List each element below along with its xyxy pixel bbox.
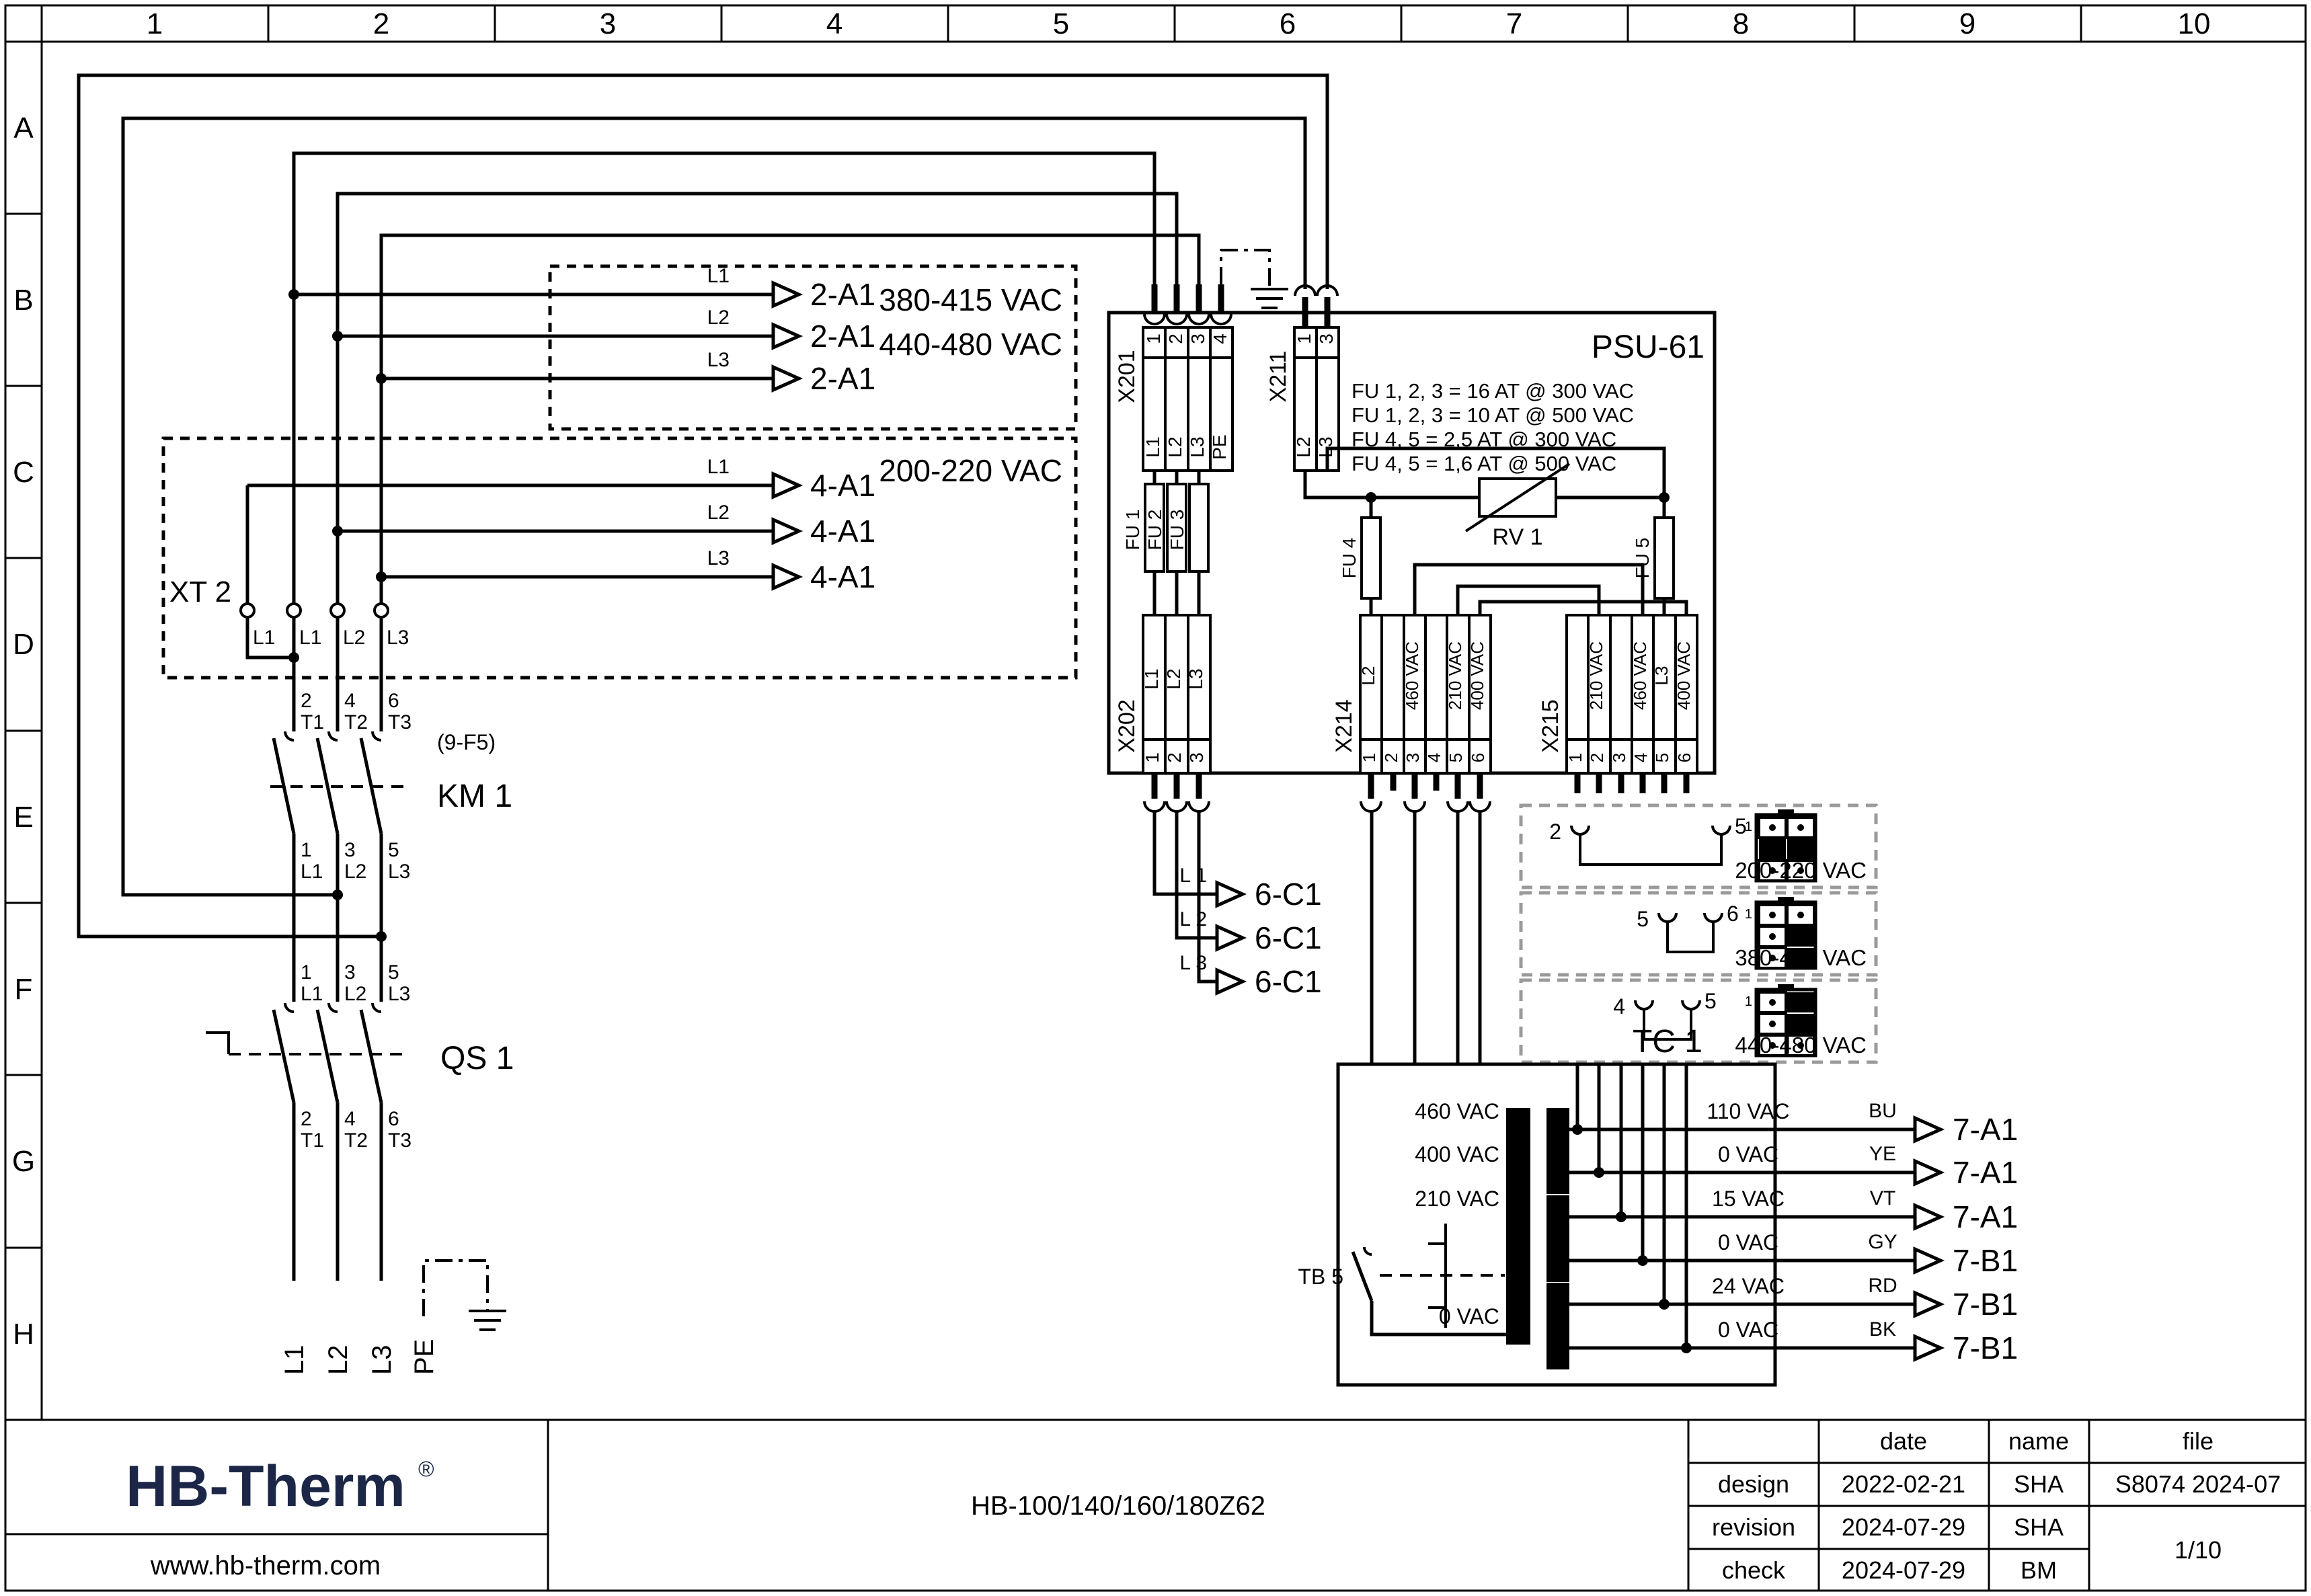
phase-label: L 3 — [1179, 952, 1207, 974]
row-date: 2024-07-29 — [1842, 1513, 1965, 1541]
x201-name: X201 — [1114, 350, 1140, 403]
logo: HB-Therm ® www.hb-therm.com — [126, 1454, 434, 1581]
pin-label: L3 — [1651, 666, 1672, 686]
fuse-label: FU 2 — [1144, 510, 1165, 551]
secondary-tap: 0 VAC — [1718, 1230, 1778, 1254]
pe-ground-symbol — [1251, 289, 1288, 308]
ruler-col: 1 — [147, 7, 163, 40]
logo-url: www.hb-therm.com — [150, 1551, 381, 1581]
jumper-pin: 6 — [1727, 902, 1739, 926]
pin: 3 — [1316, 333, 1337, 344]
hv-feed-box: L1 L2 L3 2-A1 2-A1 2-A1 380-415 VAC 440-… — [550, 265, 1076, 429]
primary-tap: 210 VAC — [1415, 1187, 1499, 1211]
xt2-terminal-label: L3 — [387, 627, 409, 649]
jumper-pin: 4 — [1613, 994, 1625, 1019]
qs1-pin-label: T3 — [388, 1129, 412, 1152]
qs1-pin-label: L3 — [388, 983, 410, 1005]
plug-pin: 1 — [1745, 820, 1752, 834]
ruler-col: 9 — [1959, 7, 1975, 40]
selector-380-415: 5 6 1 380-415 VAC — [1521, 893, 1876, 975]
selector-range: 200-220 VAC — [1735, 858, 1867, 883]
row-label: check — [1722, 1556, 1786, 1584]
pin-label: L3 — [1187, 436, 1208, 457]
row-label: revision — [1712, 1513, 1795, 1541]
pin: 3 — [1609, 753, 1629, 762]
km1-pin-label: L2 — [344, 861, 366, 883]
ruler-row: C — [13, 456, 34, 489]
voltage-range: 380-415 VAC — [879, 282, 1062, 317]
dest-label: 2-A1 — [810, 361, 875, 396]
km1-pin-label: T3 — [388, 711, 412, 733]
secondary-tap: 15 VAC — [1712, 1187, 1785, 1211]
qs1-pin: 1 — [301, 961, 312, 984]
pin: 2 — [1381, 753, 1401, 762]
arrow-2a1 — [773, 283, 799, 306]
wire-color: YE — [1869, 1143, 1896, 1165]
pin-label: L2 — [1358, 666, 1378, 686]
ruler-col: 7 — [1506, 7, 1522, 40]
pin: 5 — [1446, 753, 1466, 762]
jumper-pin: 2 — [1549, 820, 1561, 844]
km1-pin-label: T2 — [344, 711, 368, 733]
x214-name: X214 — [1331, 699, 1357, 752]
dest-label: 7-B1 — [1953, 1287, 2018, 1322]
title-block: HB-Therm ® www.hb-therm.com HB-100/140/1… — [5, 1420, 2306, 1591]
pin: 4 — [1424, 753, 1444, 762]
pin: 1 — [1359, 753, 1379, 762]
phase-label: L 2 — [1179, 908, 1207, 930]
pin: 4 — [1210, 333, 1230, 344]
pin-label: L2 — [1165, 436, 1185, 457]
pin-label: 210 VAC — [1586, 641, 1606, 710]
schematic-canvas: 1 2 3 4 5 6 7 8 9 10 A B C D E F G H — [0, 0, 2311, 1596]
pin-label: 460 VAC — [1402, 641, 1422, 710]
secondary-tap: 110 VAC — [1707, 1099, 1789, 1123]
ruler-row: B — [13, 284, 33, 317]
tc1-outputs: BU YE VT GY RD BK 7-A1 7-A1 7-A1 7-B1 7-… — [1868, 1100, 2018, 1365]
ruler-col: 3 — [600, 7, 616, 40]
wire-color: GY — [1868, 1231, 1897, 1253]
fuse-note: FU 1, 2, 3 = 16 AT @ 300 VAC — [1352, 379, 1634, 403]
fuse-note: FU 1, 2, 3 = 10 AT @ 500 VAC — [1352, 403, 1634, 427]
tb5-label: TB 5 — [1298, 1265, 1343, 1289]
phase-label: L2 — [707, 307, 730, 329]
phase-label: L1 — [707, 265, 730, 287]
row-name: SHA — [2014, 1513, 2064, 1541]
psu-61: PSU-61 FU 1, 2, 3 = 16 AT @ 300 VAC FU 1… — [1109, 250, 1715, 773]
ruler-col: 6 — [1280, 7, 1296, 40]
pin-label: PE — [1209, 434, 1230, 459]
pin: 2 — [1587, 753, 1607, 762]
page-number: 1/10 — [2175, 1536, 2222, 1564]
logo-text: HB-Therm — [126, 1454, 405, 1519]
dest-label: 7-B1 — [1953, 1243, 2018, 1278]
xt2-name: XT 2 — [169, 575, 231, 608]
fuse-label: FU 3 — [1167, 510, 1187, 551]
pin-label: 400 VAC — [1467, 641, 1487, 710]
ruler-row: G — [12, 1145, 35, 1178]
ruler-col: 8 — [1733, 7, 1749, 40]
dest-label: 4-A1 — [810, 559, 875, 594]
qs1-pin: 2 — [301, 1108, 312, 1130]
ground-symbol — [469, 1311, 506, 1330]
pin: 1 — [1143, 333, 1164, 344]
dest-label: 7-A1 — [1953, 1112, 2018, 1147]
qs1-pin-label: L1 — [301, 983, 323, 1005]
wire-color: BU — [1869, 1100, 1897, 1122]
qs1-pin-label: L2 — [344, 983, 366, 1005]
pin-label: L1 — [1141, 668, 1162, 689]
km1-ref: (9-F5) — [437, 730, 496, 754]
out-6c1: L 1 L 2 L 3 6-C1 6-C1 6-C1 — [1154, 811, 1322, 999]
phase-label: L2 — [707, 502, 730, 524]
km1-pin-label: T1 — [301, 711, 324, 733]
arrow-2a1 — [773, 367, 799, 390]
qs1-name: QS 1 — [440, 1041, 514, 1076]
km1-contactor: 2 4 6 T1 T2 T3 1 3 5 L1 L2 L3 (9-F5) KM … — [270, 690, 512, 1002]
bottom-plugs — [1144, 773, 1690, 811]
pin-label: L2 — [1163, 668, 1184, 689]
dest-label: 7-A1 — [1953, 1199, 2018, 1234]
plug-pin: 1 — [1745, 994, 1752, 1009]
phase-label: L1 — [707, 456, 730, 478]
km1-pin: 2 — [301, 690, 312, 712]
pin: 6 — [1674, 753, 1694, 762]
wire-color: VT — [1870, 1187, 1895, 1209]
jumper-pin: 5 — [1705, 989, 1717, 1013]
qs1-pin: 6 — [388, 1108, 399, 1130]
pin-label: 210 VAC — [1445, 641, 1465, 710]
km1-pin: 6 — [388, 690, 399, 712]
mains-label: PE — [409, 1339, 439, 1375]
logo-reg-mark: ® — [418, 1457, 434, 1481]
pin: 4 — [1631, 753, 1651, 762]
pin: 2 — [1165, 333, 1186, 344]
selector-range: 380-415 VAC — [1735, 945, 1867, 970]
xt2-terminal-label: L1 — [253, 627, 275, 649]
arrow-2a1 — [773, 325, 799, 348]
psu-name: PSU-61 — [1592, 329, 1705, 365]
pin: 3 — [1403, 753, 1423, 762]
primary-tap: 460 VAC — [1415, 1099, 1499, 1123]
xt2-terminal-label: L2 — [343, 627, 365, 649]
qs1-switch: 1 3 5 L1 L2 L3 2 4 6 T1 T2 T3 QS 1 — [206, 961, 514, 1281]
file-number: S8074 2024-07 — [2115, 1470, 2281, 1498]
row-name: SHA — [2014, 1470, 2064, 1498]
row-date: 2024-07-29 — [1842, 1556, 1965, 1584]
dest-label: 7-B1 — [1953, 1330, 2018, 1365]
ruler-row: E — [13, 801, 33, 834]
km1-name: KM 1 — [437, 779, 512, 814]
mains-entry: L1 L2 L3 PE — [280, 1261, 506, 1375]
dest-label: 2-A1 — [810, 319, 875, 354]
pin-label: L3 — [1185, 668, 1206, 689]
dest-label: 4-A1 — [810, 468, 875, 503]
selector-200-220: 2 5 1 200-220 VAC — [1521, 805, 1876, 887]
km1-pin-label: L1 — [301, 861, 323, 883]
ruler-row: D — [13, 628, 34, 661]
km1-pin: 4 — [344, 690, 356, 712]
col-header-file: file — [2183, 1427, 2214, 1455]
xt2-terminal-strip: XT 2 L1 L1 L2 L3 — [169, 485, 409, 663]
ruler-row: H — [13, 1318, 34, 1351]
plug-pin: 1 — [1745, 907, 1752, 922]
pin-label: 400 VAC — [1674, 641, 1694, 710]
dest-label: 2-A1 — [810, 277, 875, 312]
ruler-col: 4 — [826, 7, 843, 40]
schematic-page: 1 2 3 4 5 6 7 8 9 10 A B C D E F G H — [0, 0, 2311, 1596]
pin-label: L1 — [1142, 436, 1163, 457]
model-number: HB-100/140/160/180Z62 — [971, 1491, 1265, 1521]
primary-tap: 0 VAC — [1439, 1304, 1499, 1328]
pin-label: L2 — [1293, 436, 1314, 457]
xt2-terminal-label: L1 — [299, 627, 321, 649]
pin: 5 — [1652, 753, 1672, 762]
tc1-name: TC 1 — [1633, 1024, 1702, 1060]
row-date: 2022-02-21 — [1842, 1470, 1965, 1498]
km1-pin-label: L3 — [388, 861, 410, 883]
mains-label: L3 — [367, 1345, 397, 1375]
pin: 1 — [1565, 753, 1585, 762]
selector-range: 440-480 VAC — [1735, 1033, 1867, 1058]
pin-label: 460 VAC — [1630, 641, 1650, 710]
wire-color: BK — [1869, 1318, 1896, 1341]
dest-label: 4-A1 — [810, 514, 875, 549]
fuse-note: FU 4, 5 = 1,6 AT @ 500 VAC — [1352, 452, 1616, 475]
dest-label: 6-C1 — [1255, 920, 1322, 955]
x215-name: X215 — [1538, 699, 1563, 752]
arrow-4a1 — [773, 520, 799, 543]
wire-color: RD — [1868, 1275, 1897, 1297]
qs1-pin: 3 — [344, 961, 356, 984]
ruler-col: 5 — [1053, 7, 1069, 40]
secondary-tap: 0 VAC — [1718, 1142, 1778, 1166]
row-name: BM — [2021, 1556, 2057, 1584]
pin: 2 — [1164, 752, 1185, 763]
row-label: design — [1718, 1470, 1789, 1498]
ruler-col: 2 — [373, 7, 389, 40]
fuse-label: FU 1 — [1122, 510, 1143, 551]
km1-pin: 5 — [388, 839, 399, 861]
secondary-tap: 0 VAC — [1718, 1318, 1778, 1342]
qs1-pin: 4 — [344, 1108, 356, 1130]
fuse-label: FU 4 — [1339, 538, 1360, 579]
qs1-pin-label: T2 — [344, 1129, 368, 1152]
km1-pin: 3 — [344, 839, 356, 861]
dest-label: 7-A1 — [1953, 1155, 2018, 1190]
ruler-col: 10 — [2178, 7, 2211, 40]
pin: 6 — [1468, 753, 1488, 762]
arrow-4a1 — [773, 474, 799, 497]
ruler-row: A — [13, 112, 34, 145]
mains-label: L2 — [323, 1345, 353, 1375]
rv1-label: RV 1 — [1493, 524, 1543, 550]
phase-label: L3 — [707, 547, 730, 569]
tc1-transformer: TC 1 TB 5 460 VAC 400 VAC 210 VAC 0 VAC — [1298, 811, 1915, 1385]
km1-pin: 1 — [301, 839, 312, 861]
arrow-4a1 — [773, 565, 799, 588]
voltage-range: 440-480 VAC — [879, 327, 1062, 362]
phase-label: L 1 — [1179, 865, 1207, 887]
qs1-pin-label: T1 — [301, 1129, 324, 1152]
pin: 1 — [1294, 333, 1315, 344]
ruler-row: F — [15, 973, 33, 1006]
pin: 3 — [1187, 333, 1208, 344]
col-header-date: date — [1880, 1427, 1927, 1455]
pin: 3 — [1186, 752, 1207, 763]
jumper-pin: 5 — [1637, 907, 1649, 931]
col-header-name: name — [2008, 1427, 2069, 1455]
phase-label: L3 — [707, 349, 730, 371]
voltage-range: 200-220 VAC — [879, 453, 1062, 488]
x202-name: X202 — [1114, 699, 1140, 752]
pin: 1 — [1142, 752, 1163, 763]
secondary-tap: 24 VAC — [1712, 1274, 1785, 1298]
x211-name: X211 — [1265, 351, 1291, 403]
dest-label: 6-C1 — [1255, 964, 1322, 999]
qs1-pin: 5 — [388, 961, 399, 984]
mains-label: L1 — [280, 1345, 309, 1375]
dest-label: 6-C1 — [1255, 877, 1322, 912]
primary-tap: 400 VAC — [1415, 1142, 1499, 1166]
